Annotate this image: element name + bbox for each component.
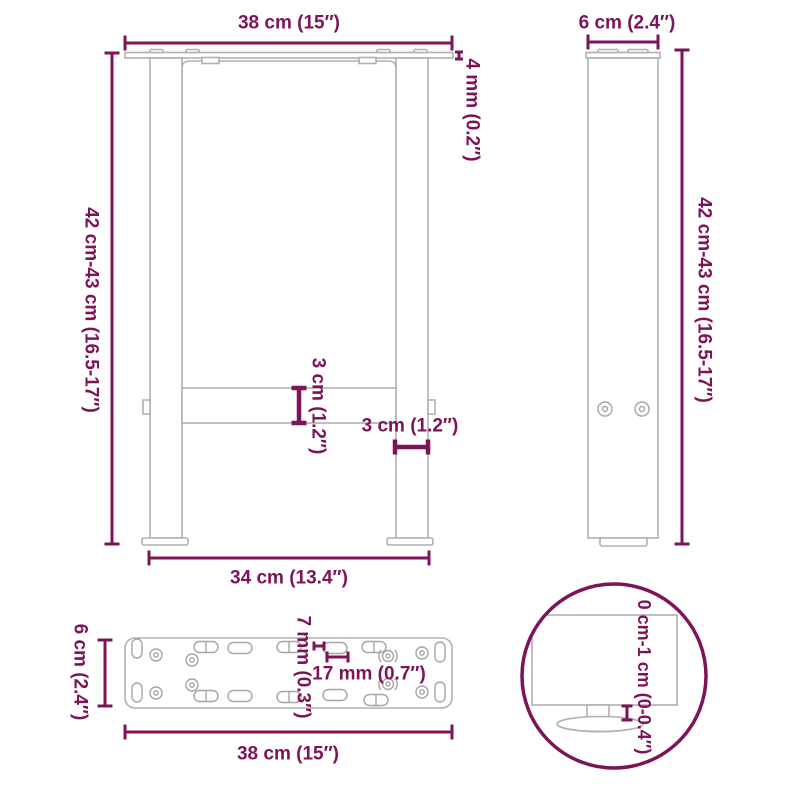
front-top-plate bbox=[125, 53, 453, 59]
front-view bbox=[125, 50, 453, 546]
label-slot-length: 17 mm (0.7″) bbox=[312, 664, 426, 685]
side-view bbox=[586, 50, 660, 547]
front-plate-slot-mark bbox=[186, 50, 199, 53]
front-plate-slot-mark bbox=[150, 50, 163, 53]
front-right-leg bbox=[396, 58, 428, 538]
foot-detail-content: 0 cm-1 cm (0-0.4″) bbox=[532, 600, 677, 755]
label-side-depth: 6 cm (2.4″) bbox=[579, 13, 676, 34]
side-foot bbox=[600, 538, 647, 546]
front-crossbar-left-lug bbox=[143, 400, 150, 414]
label-front-top-width: 38 cm (15″) bbox=[238, 13, 340, 34]
label-foot-adjustment: 0 cm-1 cm (0-0.4″) bbox=[634, 600, 654, 755]
label-plate-width: 38 cm (15″) bbox=[237, 744, 339, 765]
technical-drawing-page: 38 cm (15″) 4 mm (0.2″) 42 cm-43 cm (16.… bbox=[0, 0, 800, 800]
front-right-foot bbox=[387, 538, 433, 545]
side-leg-body bbox=[588, 58, 658, 538]
technical-drawing-canvas: 38 cm (15″) 4 mm (0.2″) 42 cm-43 cm (16.… bbox=[0, 0, 800, 800]
foot-detail-view: 0 cm-1 cm (0-0.4″) bbox=[522, 584, 706, 768]
front-left-tab bbox=[202, 58, 219, 64]
front-right-tab bbox=[359, 58, 376, 64]
label-plate-depth: 6 cm (2.4″) bbox=[70, 624, 91, 721]
label-front-height: 42 cm-43 cm (16.5-17″) bbox=[81, 207, 102, 413]
front-plate-slot-mark bbox=[414, 50, 427, 53]
front-left-leg bbox=[150, 58, 182, 538]
label-front-bottom-width: 34 cm (13.4″) bbox=[230, 568, 348, 589]
label-slot-width: 7 mm (0.3″) bbox=[293, 615, 314, 718]
front-left-foot bbox=[142, 538, 188, 545]
side-plate-slot-mark bbox=[628, 50, 648, 53]
label-leg-width: 3 cm (1.2″) bbox=[362, 416, 459, 437]
front-inner-frame bbox=[182, 61, 396, 120]
detail-leg-body bbox=[532, 615, 677, 705]
side-top-plate bbox=[586, 53, 660, 59]
label-crossbar-height: 3 cm (1.2″) bbox=[308, 358, 329, 455]
label-front-plate-thickness: 4 mm (0.2″) bbox=[462, 58, 483, 161]
side-plate-slot-mark bbox=[598, 50, 618, 53]
front-plate-slot-mark bbox=[377, 50, 390, 53]
front-crossbar-right-lug bbox=[428, 400, 435, 414]
label-side-height: 42 cm-43 cm (16.5-17″) bbox=[694, 197, 715, 403]
